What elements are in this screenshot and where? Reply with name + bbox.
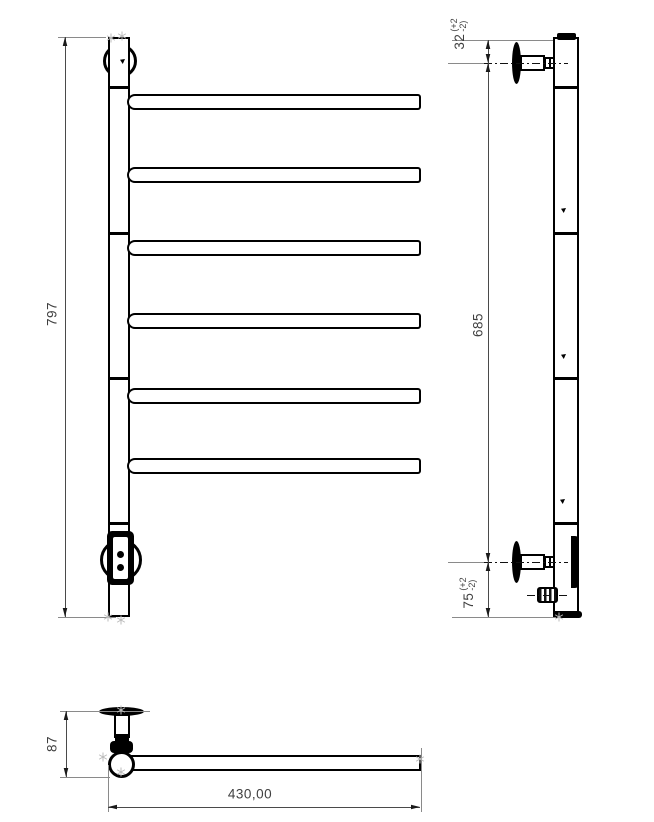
dimension-line-chain xyxy=(488,40,489,617)
profile-joint-line xyxy=(553,522,579,525)
dimension-line-87 xyxy=(66,711,67,777)
dimension-label-32: 32 (+2 -2) xyxy=(450,18,468,49)
profile-joint-line xyxy=(553,377,579,380)
bracket-centerline-top xyxy=(484,63,568,64)
post-joint-line xyxy=(108,232,130,235)
towel-bar xyxy=(127,313,421,329)
dimension-line-797 xyxy=(65,37,66,617)
control-button xyxy=(117,564,124,571)
control-unit-side xyxy=(571,536,579,588)
dimension-label-685: 685 xyxy=(471,313,486,337)
post-joint-line xyxy=(108,522,130,525)
dimension-label-797: 797 xyxy=(45,302,60,326)
towel-bar xyxy=(127,458,421,474)
post-joint-line xyxy=(108,377,130,380)
snap-marker-icon xyxy=(117,768,126,777)
dimension-arrow xyxy=(62,37,68,46)
towel-bar xyxy=(127,94,421,110)
snap-marker-icon xyxy=(118,32,127,41)
post-joint-line xyxy=(108,86,130,89)
towel-bar xyxy=(127,388,421,404)
dimension-arrow xyxy=(485,562,491,571)
snap-marker-icon xyxy=(416,755,425,764)
extension-line xyxy=(108,765,109,812)
dimension-label-430: 430,00 xyxy=(228,787,272,802)
snap-marker-icon xyxy=(117,616,126,625)
extension-line xyxy=(448,63,484,64)
towel-bar xyxy=(127,167,421,183)
profile-joint-line xyxy=(553,232,579,235)
bracket-centerline-bottom xyxy=(484,562,568,563)
towel-bar-topview xyxy=(130,755,421,771)
extension-line xyxy=(60,777,110,778)
snap-marker-icon xyxy=(555,613,564,622)
gland-centerline xyxy=(527,595,569,596)
dimension-arrow xyxy=(63,711,69,720)
dimension-label-75: 75 (+2 -2) xyxy=(459,577,477,608)
snap-marker-icon xyxy=(107,34,116,43)
profile-joint-line xyxy=(553,86,579,89)
dimension-arrow xyxy=(485,63,491,72)
control-panel-face xyxy=(113,537,128,579)
side-profile xyxy=(553,37,579,617)
dimension-label-87: 87 xyxy=(45,736,60,752)
snap-marker-icon xyxy=(104,613,113,622)
towel-bar xyxy=(127,240,421,256)
top-cap xyxy=(557,33,576,40)
extension-line xyxy=(60,711,150,712)
snap-marker-icon xyxy=(117,706,126,715)
extension-line xyxy=(448,562,484,563)
snap-marker-icon xyxy=(99,753,108,762)
dimension-line-430 xyxy=(108,807,420,808)
dimension-arrow xyxy=(485,40,491,49)
drawing-canvas: 797 xyxy=(0,0,654,822)
dimension-arrow xyxy=(108,804,117,810)
dimension-arrow xyxy=(411,804,420,810)
control-button xyxy=(117,551,124,558)
extension-line xyxy=(452,617,556,618)
vertical-post xyxy=(108,37,130,617)
